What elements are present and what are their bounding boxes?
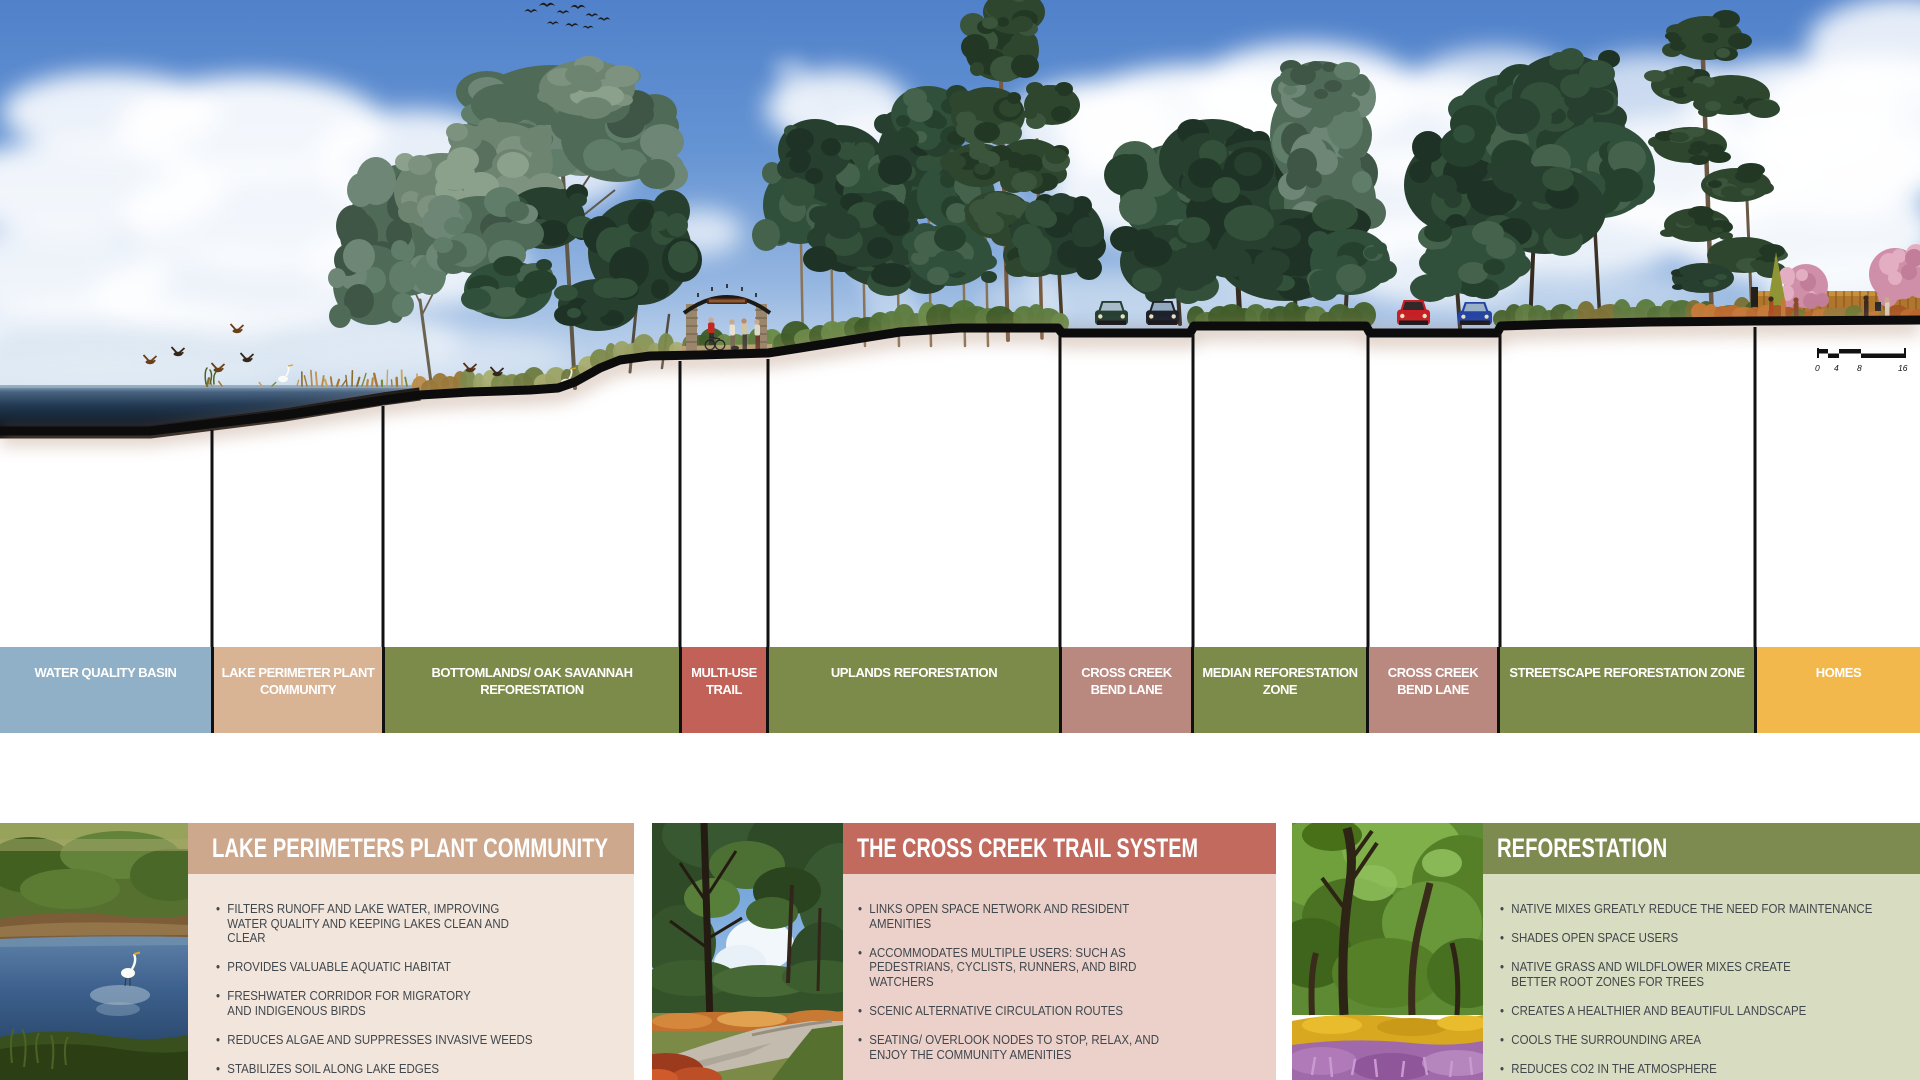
svg-text:8: 8 <box>1857 363 1862 373</box>
svg-text:0: 0 <box>1815 363 1820 373</box>
svg-text:4: 4 <box>1834 363 1839 373</box>
svg-text:16: 16 <box>1898 363 1908 373</box>
